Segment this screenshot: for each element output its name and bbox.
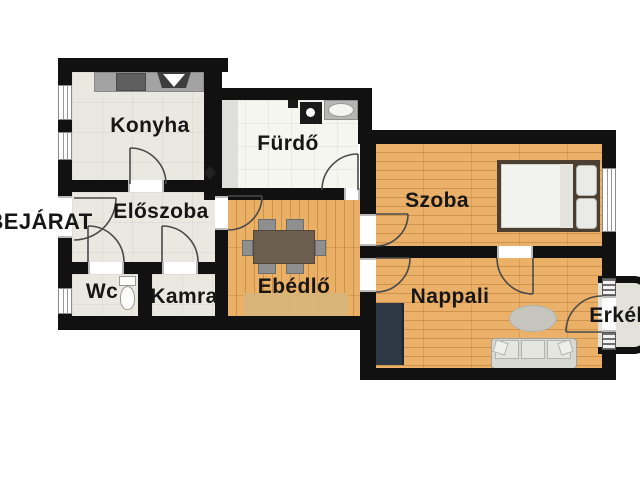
stove-icon: [116, 73, 146, 91]
washing-machine-door: [306, 108, 315, 117]
wall-segment: [360, 368, 616, 380]
door-opening: [162, 262, 198, 274]
bed-duvet-fold: [560, 164, 573, 228]
room-label-bejarat: BEJÁRAT: [0, 209, 93, 235]
balcony-window-icon: [602, 332, 616, 350]
wall-segment: [204, 88, 372, 100]
chair-icon: [242, 240, 253, 256]
wall-segment: [376, 246, 602, 258]
toilet-tank: [119, 276, 136, 286]
door-opening: [215, 196, 228, 230]
shower-strip: [222, 100, 238, 188]
chair-icon: [315, 240, 326, 256]
wardrobe-icon: [374, 303, 404, 365]
room-label-nappali: Nappali: [411, 285, 490, 309]
door-opening: [88, 262, 124, 274]
window-icon: [58, 288, 72, 314]
room-label-eloszoba: Előszoba: [113, 200, 208, 224]
wall-segment: [58, 58, 228, 72]
balcony-window-icon: [602, 278, 616, 296]
door-opening: [128, 180, 164, 192]
toilet-icon: [120, 286, 135, 310]
room-label-furdo: Fürdő: [257, 132, 318, 156]
pillow-icon: [576, 198, 597, 229]
oval-rug-icon: [509, 305, 557, 332]
door-opening: [360, 214, 376, 246]
wall-segment: [360, 130, 616, 144]
floor-plan: Konyha Fürdő Előszoba BEJÁRAT Wc Kamra E…: [0, 0, 640, 480]
room-label-kamra: Kamra: [150, 285, 217, 309]
sink-icon: [328, 103, 354, 117]
room-label-ebedlo: Ebédlő: [258, 275, 330, 299]
room-label-wc: Wc: [86, 280, 118, 304]
room-label-erkely: Erkély: [589, 304, 640, 328]
door-opening: [360, 258, 376, 292]
room-label-konyha: Konyha: [110, 114, 189, 138]
window-icon: [602, 168, 616, 232]
door-opening: [497, 246, 533, 258]
sofa-cushion: [521, 340, 545, 359]
window-icon: [58, 132, 72, 160]
pillow-icon: [576, 165, 597, 196]
room-label-szoba: Szoba: [405, 189, 469, 213]
wall-segment: [204, 58, 222, 200]
door-opening: [344, 188, 360, 200]
window-icon: [58, 85, 72, 120]
dining-table-icon: [253, 230, 315, 264]
